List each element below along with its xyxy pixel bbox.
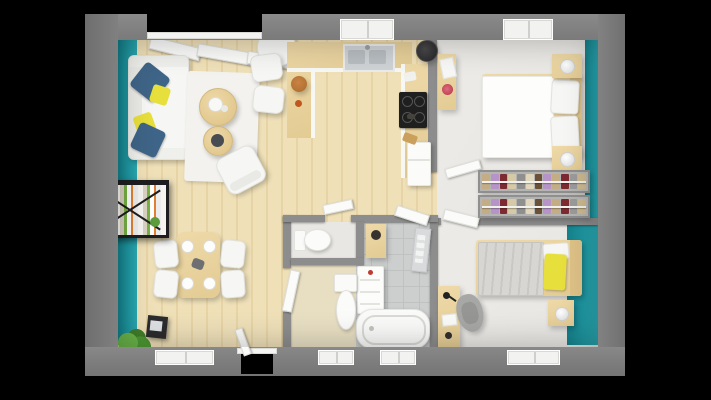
hanging-clothes-item [570,174,578,189]
front-door-gap [241,354,273,374]
hanging-clothes-item [543,174,551,189]
floorplan [85,14,625,376]
wall-bath-left-a [283,215,291,268]
desk-item [445,332,452,339]
wall-bath-top-a [283,215,325,222]
kitchen-sink [343,44,395,72]
coffee-table-cup [221,105,228,112]
window-mullion [185,352,187,363]
shelf-towel [439,57,457,79]
desk-paper [441,313,457,327]
toilet-bowl [304,229,331,251]
wall-wc-bottom [291,258,364,265]
hanging-clothes-item [491,174,499,189]
stove-cabinet-front [150,320,163,331]
side-table-decor [211,134,224,147]
coffee-table [199,88,237,126]
cafe-chair [249,52,283,83]
window-mullion [336,352,338,363]
cooktop [399,92,427,128]
toilet-bowl [336,290,356,330]
nightstand [552,54,582,78]
desk-chair-seat [460,300,481,325]
bathtub-drain [369,326,374,331]
hanging-clothes-item [561,174,569,189]
hanging-clothes-item [570,199,578,214]
hanging-clothes-item [526,174,534,189]
refrigerator [407,142,431,186]
range-hood [416,40,438,62]
bed2-duvet [478,242,544,296]
bed2-headboard [570,240,582,296]
hanging-clothes-item [535,199,543,214]
hanging-clothes-item [500,174,508,189]
cabinet-drawer-line [360,291,380,293]
outer-wall-right [598,14,625,376]
hanging-clothes-item [500,199,508,214]
dining-window [155,350,214,365]
hanging-clothes-item [482,174,490,189]
cabinet-drawer-line [360,279,380,281]
table-centerpiece [191,257,206,271]
bay-window-opening [147,14,262,34]
hanging-clothes-item [491,199,499,214]
sink-faucet [365,45,370,50]
burner [414,112,425,123]
bathroom-window [380,350,416,365]
hanging-clothes-item [552,174,560,189]
sink-basin [348,50,365,64]
hanging-clothes-item [578,174,586,189]
hanging-clothes-item [535,174,543,189]
dining-chair [153,239,180,269]
hanging-clothes-item [508,199,516,214]
dining-chair [220,239,247,269]
hanging-clothes-item [561,199,569,214]
red-flower [442,84,453,95]
window-mullion [528,21,530,38]
hanging-clothes-item [578,199,586,214]
dining-table [176,232,220,298]
burner [402,96,413,107]
stove-cabinet [146,315,168,339]
nightstand [548,300,574,326]
clothes-rail [478,170,590,193]
bathtub [356,309,430,349]
table-lamp [560,59,575,74]
counter-item-utensil [407,114,415,119]
bedroom1-shelf [438,54,456,110]
table-lamp [560,152,575,167]
bedroom2-window [507,350,560,365]
clothes-rail [478,195,590,218]
refrigerator-door-line [408,159,430,161]
plate [181,277,194,290]
cabinet-drawer-line [360,303,380,305]
hanging-clothes-item [482,199,490,214]
sofa-armrest [129,56,188,67]
hall-window [318,350,354,365]
hanging-clothes-item [552,199,560,214]
vanity-basin [371,230,381,240]
towel [415,235,426,264]
window-mullion [534,352,536,363]
dining-chair [153,269,180,299]
outer-wall-left [85,14,118,376]
sink-basin [369,50,386,64]
spice-jar [295,100,302,107]
wall-wc-right [356,222,364,258]
cafe-chair [252,84,286,114]
side-table [203,126,233,156]
shelf-plant [150,217,160,227]
cabinet-red-accent [368,270,373,275]
plate [181,240,194,253]
bathroom-cabinet [357,266,384,314]
bed2-pillow-yellow [543,253,567,290]
hanging-clothes-item [517,199,525,214]
kitchen-window [340,19,394,40]
dining-chair [220,269,246,299]
burner [414,96,425,107]
hanging-clothes-item [508,174,516,189]
plate [203,277,216,290]
window-mullion [398,352,400,363]
plate [203,240,216,253]
wall-closet-bedroom2-b [477,218,598,225]
bed1-pillow [550,79,580,114]
vanity-shelf [366,224,386,258]
wall-bath-left-b [283,312,291,347]
table-lamp [555,307,569,321]
window-mullion [367,21,369,38]
hanging-clothes-item [526,199,534,214]
bed1-duvet [482,76,554,158]
hanging-clothes-item [517,174,525,189]
fruit-bowl [291,76,307,92]
floorplan-render [0,0,711,400]
bedroom1-window [503,19,553,40]
bay-window-sill [147,32,262,39]
hanging-clothes-item [543,199,551,214]
wall-bathroom-bedroom2 [430,222,438,347]
nightstand [552,146,582,170]
